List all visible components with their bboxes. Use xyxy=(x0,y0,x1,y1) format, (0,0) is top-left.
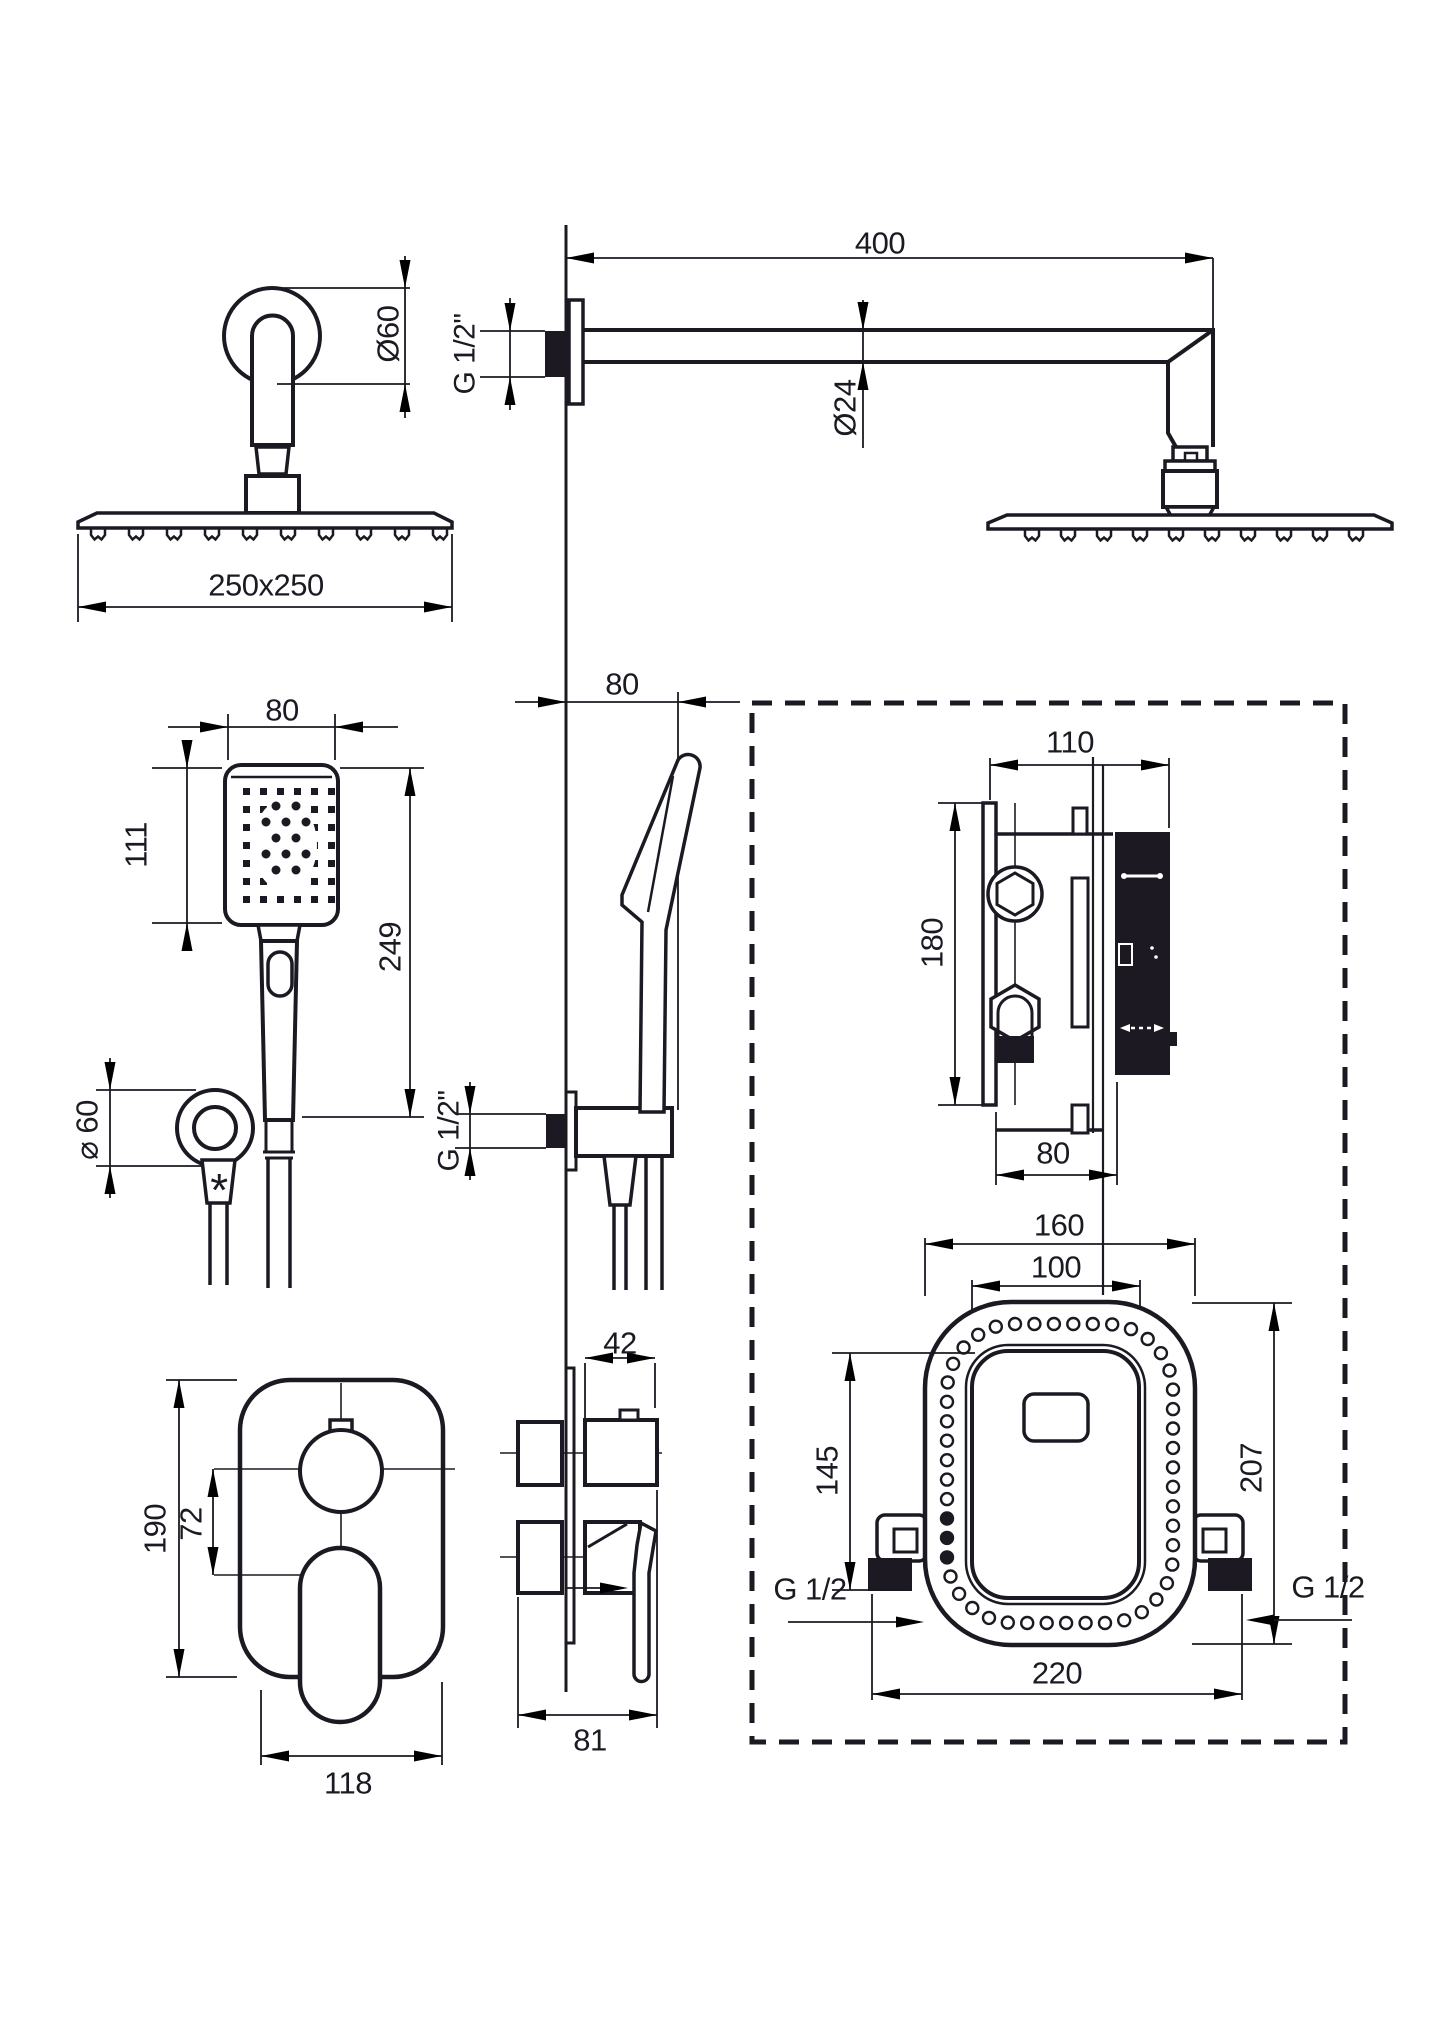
plate-hole xyxy=(942,1376,954,1388)
plate-hole xyxy=(941,1454,953,1466)
handshower-side-profile xyxy=(622,754,700,1112)
thread-label-left: G 1/2 xyxy=(773,1572,846,1607)
dim-label-mixer-centers: 72 xyxy=(174,1507,209,1540)
plate-hole xyxy=(1167,1384,1179,1396)
plate-hole xyxy=(958,1342,970,1354)
dim-label-mixer-height: 190 xyxy=(138,1504,173,1554)
plate-hole xyxy=(1009,1318,1021,1330)
dim-label-valve-body-depth: 80 xyxy=(1036,1136,1070,1171)
thread-label-right: G 1/2 xyxy=(1291,1570,1364,1605)
valve-bottom-block xyxy=(996,1036,1034,1063)
head-plate-right xyxy=(988,515,1392,529)
plate-hole xyxy=(1125,1323,1137,1335)
dim-mixer-centers: 72 xyxy=(174,1469,219,1575)
plate-hole xyxy=(1060,1617,1072,1629)
valve-concealed-body xyxy=(1115,832,1170,1075)
holder-ring xyxy=(194,1107,236,1149)
plate-hole xyxy=(1048,1318,1060,1330)
arm-front-view: 400 G 1/2" Ø24 xyxy=(449,226,1218,517)
plate-hole xyxy=(1136,1606,1148,1618)
dim-handshower-width: 80 xyxy=(168,693,398,761)
left-connector xyxy=(868,1515,927,1591)
plate-hole xyxy=(941,1513,953,1525)
plate-hole xyxy=(1167,1403,1179,1415)
dim-label-handshower-face-height: 111 xyxy=(119,822,154,868)
head-side-view-right xyxy=(988,515,1392,541)
handshower-hose xyxy=(268,1158,290,1288)
dim-label-holder-diameter: ⌀ 60 xyxy=(70,1100,105,1160)
dim-holder-thread: G 1/2" xyxy=(433,1082,547,1180)
plate-hole xyxy=(941,1415,953,1427)
plate-hole xyxy=(1155,1347,1167,1359)
dim-head-size: 250x250 xyxy=(78,534,452,622)
plate-hole xyxy=(947,1358,959,1370)
plate-hole xyxy=(1164,1365,1176,1377)
holder-side-cone xyxy=(604,1156,636,1205)
dim-knob-depth: 42 xyxy=(585,1326,655,1419)
dim-valve-body-depth: 80 xyxy=(996,1082,1117,1185)
elbow-front-view: Ø60 xyxy=(224,256,411,513)
dim-label-arm-length: 400 xyxy=(855,226,905,261)
handshower-mode-button xyxy=(268,952,292,996)
arm-head-connector xyxy=(1163,447,1217,516)
elbow-base xyxy=(246,476,299,513)
valve-trim-plate-side xyxy=(983,803,996,1105)
dim-plate-outer-height: 207 xyxy=(1192,1303,1292,1644)
handshower-neck xyxy=(258,925,300,941)
plate-hole xyxy=(941,1396,953,1408)
plate-hole xyxy=(1167,1500,1179,1512)
dim-valve-height: 180 xyxy=(915,803,984,1105)
valve-top-nut-hex xyxy=(997,873,1033,915)
arm-pipe xyxy=(583,330,1213,447)
plate-hole xyxy=(1161,1577,1173,1589)
plate-hole xyxy=(1166,1559,1178,1571)
mixer-trim-plate-side xyxy=(566,1368,574,1643)
dim-label-arm-pipe-diameter: Ø24 xyxy=(828,379,863,436)
plate-hole xyxy=(1028,1318,1040,1330)
technical-drawing-sheet: Ø60 250x250 400 xyxy=(0,0,1445,2043)
dim-arm-thread: G 1/2" xyxy=(449,298,546,410)
thread-callout-right: G 1/2 xyxy=(1246,1570,1365,1626)
mixer-knob-side xyxy=(585,1420,657,1485)
mixer-knob-notch-side xyxy=(620,1410,638,1420)
plate-hole xyxy=(941,1493,953,1505)
mixer-side-view: 42 81 xyxy=(500,1326,662,1758)
holder-side-thread xyxy=(546,1114,566,1148)
plate-hole xyxy=(953,1588,965,1600)
dim-label-valve-height: 180 xyxy=(915,918,950,968)
plate-hole xyxy=(990,1321,1002,1333)
plate-hole xyxy=(1167,1481,1179,1493)
plate-hole xyxy=(941,1551,953,1563)
plate-hole xyxy=(966,1602,978,1614)
plate-hole xyxy=(1167,1423,1179,1435)
elbow-tube xyxy=(252,316,293,446)
plate-hole xyxy=(1167,1461,1179,1473)
valve-front-view: 160 100 145 207 xyxy=(773,1208,1364,1701)
dim-label-elbow-diameter: Ø60 xyxy=(371,305,406,362)
arm-wall-flange xyxy=(569,300,583,404)
mixer-diverter-knob xyxy=(300,1430,382,1512)
dim-label-plate-inner-height: 145 xyxy=(810,1446,845,1496)
dim-arm-length: 400 xyxy=(566,226,1213,329)
dim-label-arm-thread: G 1/2" xyxy=(449,313,482,394)
mixer-lever xyxy=(300,1548,380,1722)
shower-set-dimension-drawing: Ø60 250x250 400 xyxy=(0,0,1445,2043)
dim-label-plate-inner-width: 100 xyxy=(1031,1250,1081,1285)
mixer-backbox-top xyxy=(518,1422,562,1485)
plate-hole xyxy=(1106,1318,1118,1330)
valve-body-nub xyxy=(1170,1032,1177,1046)
plate-hole xyxy=(1041,1617,1053,1629)
plate-hole xyxy=(1118,1614,1130,1626)
plate-hole xyxy=(1167,1520,1179,1532)
dim-label-handshower-width: 80 xyxy=(265,693,299,728)
dim-label-knob-depth: 42 xyxy=(603,1326,636,1361)
plate-hole xyxy=(1167,1539,1179,1551)
plate-hole xyxy=(1021,1617,1033,1629)
plate-hole xyxy=(945,1571,957,1583)
head-side-view-left: 250x250 xyxy=(78,513,452,622)
plate-hole xyxy=(983,1612,995,1624)
dim-label-plate-outer-width: 160 xyxy=(1034,1208,1084,1243)
valve-rail-bottom xyxy=(1072,1105,1088,1133)
dim-label-valve-depth: 110 xyxy=(1046,725,1094,760)
handshower-spray-pattern xyxy=(241,787,342,904)
plate-hole xyxy=(941,1532,953,1544)
plate-hole xyxy=(1099,1617,1111,1629)
elbow-neck xyxy=(256,447,289,474)
plate-hole xyxy=(1002,1617,1014,1629)
dim-label-handshower-length: 249 xyxy=(373,922,408,972)
dim-label-mixer-width: 118 xyxy=(324,1766,372,1801)
holder-side-body xyxy=(576,1108,672,1156)
plate-hole xyxy=(1150,1594,1162,1606)
holder-front-view: * ⌀ 60 xyxy=(70,1058,254,1285)
handshower-side-view: 80 G 1/2" xyxy=(433,667,741,1291)
dim-label-mixer-depth: 81 xyxy=(573,1723,606,1758)
arm-thread-connector xyxy=(545,331,569,377)
dim-arm-pipe-diameter: Ø24 xyxy=(828,300,869,448)
plate-hole xyxy=(1080,1617,1092,1629)
mixer-lever-handle-side xyxy=(634,1523,656,1682)
handshower-front-view: 80 111 249 xyxy=(119,693,425,1289)
plate-hole xyxy=(1142,1333,1154,1345)
inner-plate-window xyxy=(1024,1394,1088,1441)
dim-label-wall-offset: 80 xyxy=(605,667,639,702)
dim-label-connector-span: 220 xyxy=(1032,1656,1082,1691)
dim-handshower-face-height: 111 xyxy=(119,740,223,951)
plate-hole xyxy=(941,1435,953,1447)
plate-hole xyxy=(972,1329,984,1341)
plate-hole xyxy=(941,1474,953,1486)
dim-label-plate-outer-height: 207 xyxy=(1234,1443,1269,1493)
mixer-front-view: 190 72 118 xyxy=(138,1380,456,1801)
head-plate-left xyxy=(78,513,452,528)
handshower-hose-nut xyxy=(263,1120,295,1158)
plate-hole xyxy=(1167,1442,1179,1454)
dim-label-head-size: 250x250 xyxy=(208,568,324,603)
dim-label-holder-thread: G 1/2" xyxy=(433,1090,466,1171)
mixer-backbox-bottom xyxy=(518,1522,562,1593)
valve-rail-top xyxy=(1073,808,1087,834)
valve-rail xyxy=(1072,878,1088,1027)
plate-hole xyxy=(1067,1318,1079,1330)
inner-plate xyxy=(972,1351,1139,1598)
plate-hole xyxy=(1087,1318,1099,1330)
right-connector xyxy=(1193,1515,1252,1591)
